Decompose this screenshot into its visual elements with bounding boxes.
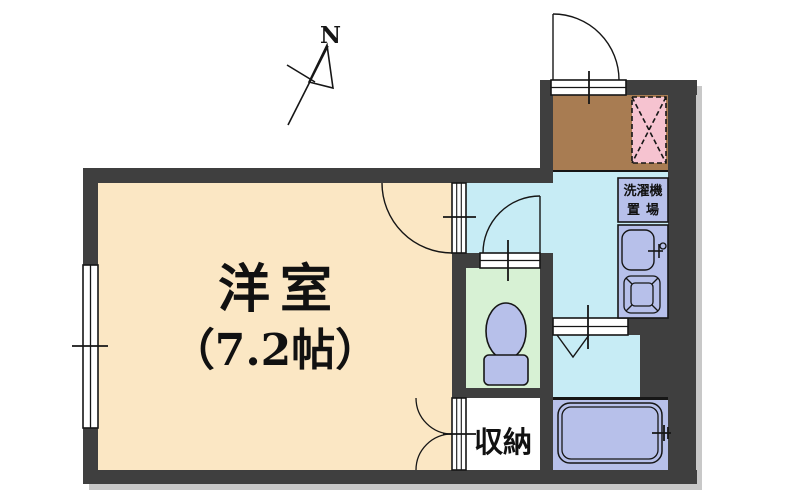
main-room-label: 洋室 （7.2帖） bbox=[98, 260, 452, 382]
wall-below-main-door bbox=[452, 253, 480, 268]
wall-top-main bbox=[83, 168, 553, 183]
storage-label: 収納 bbox=[466, 419, 540, 461]
wall-washroom-right bbox=[640, 318, 668, 397]
main-room-name: 洋室 bbox=[98, 260, 452, 320]
hallway-kitchen-floor bbox=[553, 253, 668, 318]
entrance-step-line bbox=[553, 170, 668, 172]
washing-machine-label-line2: 置場 bbox=[618, 201, 668, 220]
shadow-right bbox=[696, 86, 702, 490]
wall-toilet-left bbox=[452, 268, 466, 398]
shadow-bottom bbox=[89, 484, 702, 490]
north-arrow-icon bbox=[287, 45, 333, 125]
washroom-floor bbox=[553, 335, 640, 397]
bathroom-floor bbox=[553, 400, 668, 470]
wall-bottom bbox=[83, 470, 697, 484]
entrance-genkan-floor bbox=[553, 95, 668, 170]
floor-plan: N bbox=[0, 0, 800, 500]
wall-right bbox=[668, 80, 696, 484]
toilet-room-floor bbox=[466, 268, 540, 388]
wall-storage-right bbox=[540, 398, 553, 470]
washing-machine-place-label: 洗濯機 置場 bbox=[618, 182, 668, 220]
main-room-size: （7.2帖） bbox=[98, 320, 452, 382]
wall-left bbox=[83, 168, 98, 484]
bathroom-top-line bbox=[553, 397, 668, 400]
wall-toilet-right bbox=[540, 253, 553, 398]
wall-folding-door-right bbox=[628, 318, 640, 335]
wall-toilet-bottom bbox=[452, 388, 553, 398]
washing-machine-label-line1: 洗濯機 bbox=[618, 182, 668, 201]
compass-north-label: N bbox=[320, 22, 341, 49]
